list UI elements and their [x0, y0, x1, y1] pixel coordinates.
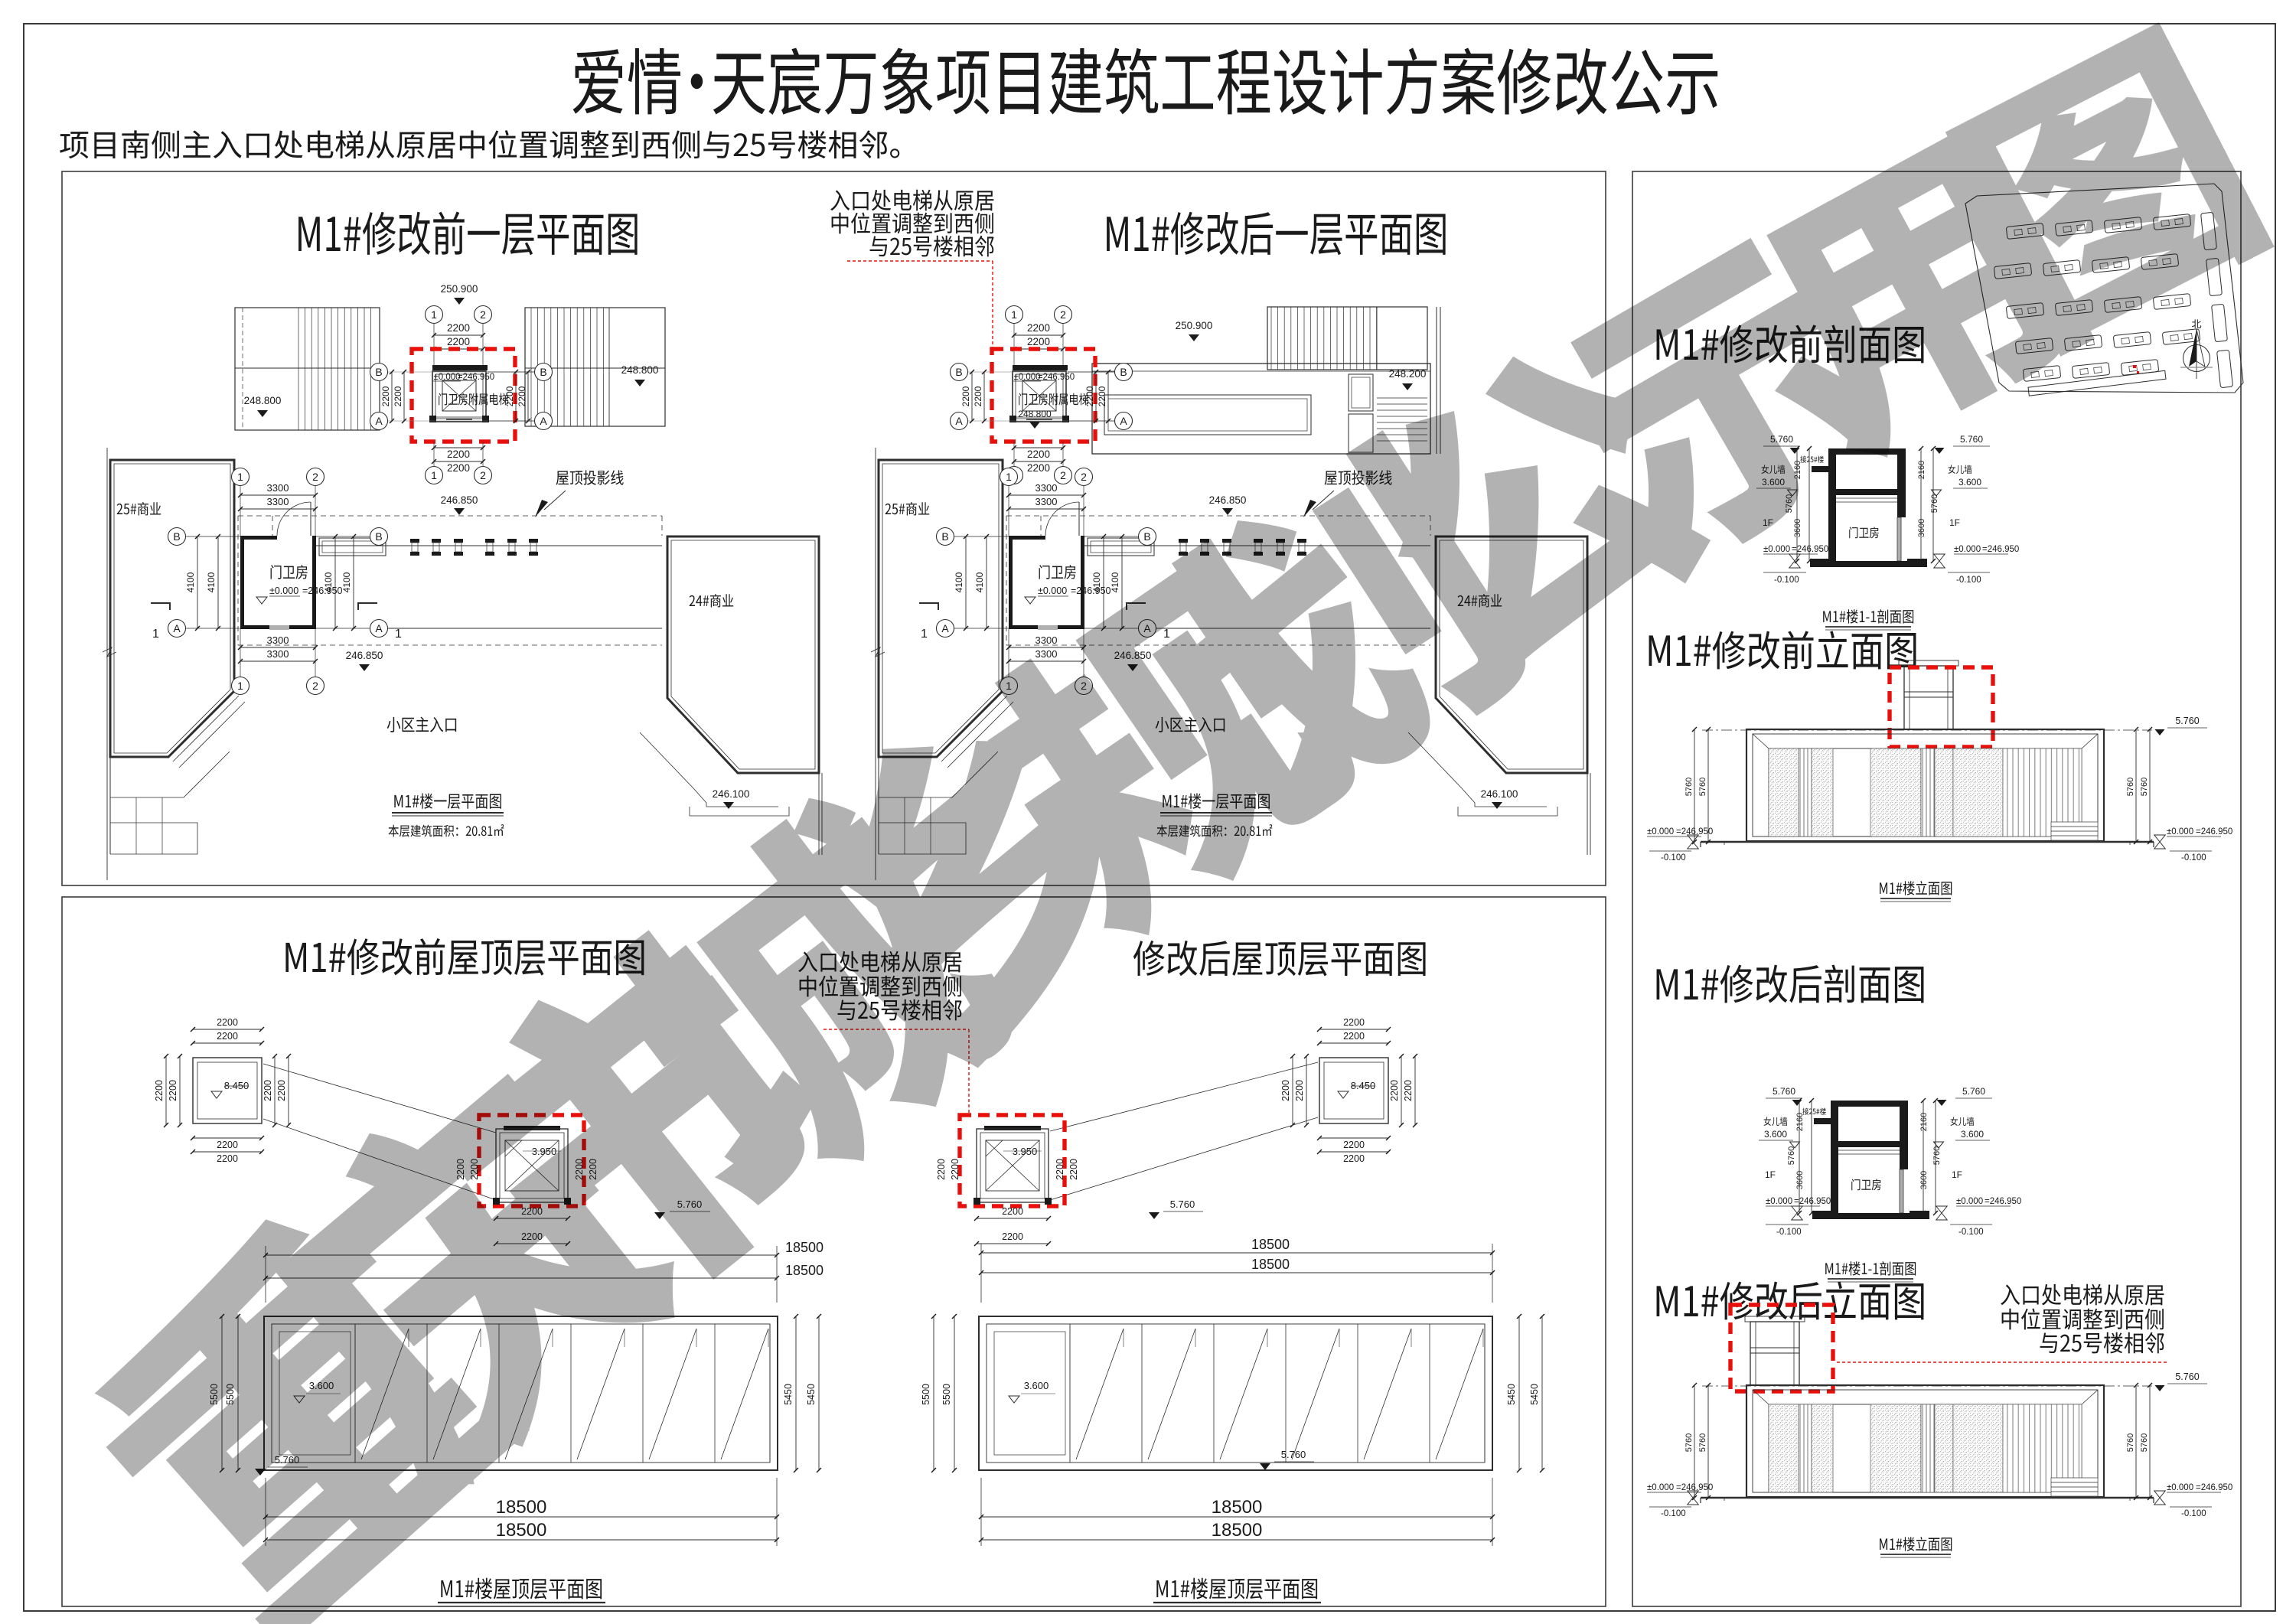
svg-text:±0.000: ±0.000 [1763, 545, 1790, 554]
svg-text:4100: 4100 [185, 572, 196, 592]
svg-text:8.450: 8.450 [1351, 1080, 1376, 1091]
svg-text:18500: 18500 [1251, 1257, 1290, 1272]
svg-text:3.950: 3.950 [1013, 1146, 1038, 1157]
svg-text:3300: 3300 [1035, 482, 1058, 494]
svg-text:2160: 2160 [1795, 1113, 1805, 1131]
svg-text:2200: 2200 [1343, 1153, 1365, 1164]
svg-text:5760: 5760 [1698, 778, 1707, 796]
svg-text:±0.000: ±0.000 [1647, 827, 1674, 836]
svg-text:-0.100: -0.100 [1776, 1228, 1802, 1237]
svg-text:2200: 2200 [1343, 1140, 1365, 1150]
svg-text:A: A [375, 415, 383, 427]
svg-text:250.900: 250.900 [441, 283, 478, 295]
svg-text:246.850: 246.850 [1209, 494, 1247, 506]
svg-text:5500: 5500 [941, 1384, 952, 1405]
svg-text:2200: 2200 [154, 1080, 165, 1101]
svg-text:A: A [955, 415, 963, 427]
svg-text:2160: 2160 [1919, 1113, 1929, 1131]
svg-text:4100: 4100 [1091, 572, 1102, 592]
svg-text:A: A [375, 622, 383, 634]
svg-text:2200: 2200 [263, 1080, 273, 1101]
svg-text:=246.950: =246.950 [458, 373, 494, 382]
svg-text:2200: 2200 [1343, 1017, 1365, 1028]
svg-text:1: 1 [431, 308, 437, 321]
svg-text:2200: 2200 [936, 1159, 947, 1180]
svg-text:=246.950: =246.950 [1985, 1197, 2021, 1206]
svg-text:5450: 5450 [806, 1384, 817, 1405]
svg-text:2200: 2200 [276, 1080, 287, 1101]
svg-text:5760: 5760 [1684, 1433, 1694, 1452]
svg-text:8.450: 8.450 [224, 1080, 249, 1091]
svg-text:1: 1 [1006, 471, 1012, 483]
svg-text:2: 2 [1060, 469, 1066, 481]
svg-text:-0.100: -0.100 [1958, 1228, 1984, 1237]
svg-text:B: B [540, 366, 546, 378]
svg-text:1: 1 [237, 680, 243, 692]
svg-text:2200: 2200 [950, 1159, 960, 1180]
svg-text:-0.100: -0.100 [1661, 853, 1686, 863]
svg-text:5760: 5760 [1787, 1146, 1796, 1165]
svg-text:5.760: 5.760 [1960, 434, 1983, 445]
svg-text:±0.000: ±0.000 [1038, 585, 1067, 596]
svg-text:3600: 3600 [1919, 1171, 1929, 1189]
svg-text:5500: 5500 [921, 1384, 931, 1405]
svg-text:246.850: 246.850 [346, 650, 383, 661]
svg-text:2200: 2200 [1002, 1231, 1023, 1242]
svg-text:3300: 3300 [267, 496, 289, 507]
svg-text:3600: 3600 [1795, 1171, 1805, 1189]
svg-text:2200: 2200 [1027, 448, 1050, 460]
svg-text:1F: 1F [1949, 517, 1960, 528]
svg-text:2200: 2200 [1280, 1080, 1291, 1101]
svg-text:5.760: 5.760 [1773, 1086, 1795, 1097]
svg-text:A: A [173, 622, 181, 634]
svg-text:3.600: 3.600 [1764, 1129, 1787, 1140]
svg-text:1: 1 [152, 628, 159, 641]
svg-text:1F: 1F [1952, 1169, 1962, 1180]
svg-text:2200: 2200 [217, 1153, 238, 1164]
svg-text:=246.950: =246.950 [1982, 545, 2019, 554]
svg-text:246.100: 246.100 [1481, 788, 1518, 800]
svg-text:5450: 5450 [783, 1384, 794, 1405]
svg-text:B: B [941, 530, 948, 543]
svg-text:2: 2 [312, 471, 318, 483]
svg-text:A: A [540, 415, 547, 427]
svg-text:5760: 5760 [2140, 1433, 2149, 1452]
svg-text:3600: 3600 [1917, 519, 1926, 537]
svg-text:5.760: 5.760 [2175, 716, 2199, 726]
svg-text:2200: 2200 [447, 322, 470, 334]
svg-text:4100: 4100 [206, 572, 217, 592]
svg-text:B: B [955, 366, 962, 378]
svg-text:2: 2 [480, 308, 486, 321]
svg-text:3300: 3300 [1035, 496, 1058, 507]
svg-text:-0.100: -0.100 [2181, 1509, 2206, 1518]
svg-text:3300: 3300 [267, 648, 289, 660]
svg-text:3.600: 3.600 [1958, 477, 1981, 488]
svg-text:5.760: 5.760 [1962, 1086, 1985, 1097]
svg-text:-0.100: -0.100 [1661, 1509, 1686, 1518]
svg-text:±0.000: ±0.000 [269, 585, 298, 596]
svg-text:4100: 4100 [974, 572, 985, 592]
svg-text:2200: 2200 [447, 448, 470, 460]
svg-text:5760: 5760 [2140, 778, 2149, 796]
svg-text:5450: 5450 [1529, 1384, 1540, 1405]
svg-text:18500: 18500 [1251, 1237, 1290, 1252]
svg-text:2: 2 [1081, 471, 1087, 483]
svg-text:=246.950: =246.950 [2196, 827, 2232, 836]
svg-text:2200: 2200 [960, 386, 971, 406]
svg-text:4100: 4100 [954, 572, 964, 592]
svg-text:=246.950: =246.950 [1038, 373, 1075, 382]
svg-text:18500: 18500 [1212, 1520, 1263, 1541]
svg-text:2200: 2200 [1403, 1080, 1414, 1101]
svg-text:246.100: 246.100 [713, 788, 750, 800]
svg-text:-0.100: -0.100 [1956, 576, 1981, 585]
svg-text:±0.000: ±0.000 [1766, 1197, 1792, 1206]
svg-text:18500: 18500 [496, 1497, 547, 1518]
svg-text:2200: 2200 [973, 386, 983, 406]
svg-text:B: B [1143, 530, 1150, 543]
svg-text:3.600: 3.600 [1961, 1129, 1984, 1140]
svg-text:250.900: 250.900 [1176, 320, 1213, 331]
svg-text:1: 1 [1163, 628, 1170, 641]
svg-text:2200: 2200 [1027, 462, 1050, 474]
svg-text:4100: 4100 [323, 572, 334, 592]
svg-text:5760: 5760 [1930, 494, 1939, 513]
svg-text:5450: 5450 [1506, 1384, 1517, 1405]
svg-text:2200: 2200 [1055, 1159, 1065, 1180]
svg-text:3300: 3300 [1035, 648, 1058, 660]
svg-text:1: 1 [237, 471, 243, 483]
svg-text:5.760: 5.760 [1281, 1449, 1306, 1460]
svg-text:2200: 2200 [217, 1140, 238, 1150]
svg-text:2200: 2200 [504, 386, 515, 406]
svg-text:3.950: 3.950 [532, 1146, 557, 1157]
svg-text:2: 2 [1060, 308, 1066, 321]
svg-text:3300: 3300 [1035, 634, 1058, 646]
svg-text:1: 1 [431, 469, 437, 481]
svg-text:2: 2 [312, 680, 318, 692]
svg-text:2200: 2200 [393, 386, 403, 406]
svg-text:2200: 2200 [380, 386, 391, 406]
svg-text:1F: 1F [1765, 1169, 1776, 1180]
svg-text:2160: 2160 [1917, 461, 1926, 479]
svg-text:1: 1 [1011, 308, 1017, 321]
svg-text:-0.100: -0.100 [2181, 853, 2206, 863]
svg-text:±0.000: ±0.000 [2167, 1483, 2193, 1492]
svg-text:±0.000: ±0.000 [433, 373, 460, 382]
svg-text:2200: 2200 [168, 1080, 178, 1101]
svg-text:±0.000: ±0.000 [1013, 373, 1040, 382]
svg-text:A: A [941, 622, 949, 634]
svg-text:2200: 2200 [447, 336, 470, 347]
svg-text:1: 1 [395, 628, 402, 641]
svg-text:2200: 2200 [1097, 386, 1107, 406]
svg-text:5760: 5760 [2126, 1433, 2135, 1452]
svg-text:2200: 2200 [1027, 322, 1050, 334]
svg-text:B: B [1120, 366, 1127, 378]
svg-text:5760: 5760 [1698, 1433, 1707, 1452]
svg-text:246.850: 246.850 [441, 494, 478, 506]
svg-text:3600: 3600 [1793, 519, 1802, 537]
svg-text:1: 1 [921, 628, 928, 641]
svg-text:5760: 5760 [2126, 778, 2135, 796]
svg-text:=246.950: =246.950 [2196, 1483, 2232, 1492]
svg-text:2200: 2200 [1343, 1031, 1365, 1042]
svg-text:2200: 2200 [447, 462, 470, 474]
svg-text:A: A [1120, 415, 1127, 427]
svg-text:5.760: 5.760 [1170, 1198, 1195, 1210]
svg-text:18500: 18500 [785, 1240, 823, 1255]
svg-text:2200: 2200 [1068, 1159, 1079, 1180]
svg-text:B: B [375, 530, 382, 543]
svg-text:4100: 4100 [1110, 572, 1120, 592]
svg-text:18500: 18500 [496, 1520, 547, 1541]
svg-text:±0.000: ±0.000 [1954, 545, 1981, 554]
svg-text:B: B [375, 366, 382, 378]
svg-text:248.800: 248.800 [621, 364, 659, 376]
svg-text:2200: 2200 [1389, 1080, 1400, 1101]
svg-text:18500: 18500 [1212, 1497, 1263, 1518]
svg-text:±0.000: ±0.000 [1647, 1483, 1674, 1492]
svg-text:B: B [173, 530, 180, 543]
svg-text:18500: 18500 [785, 1263, 823, 1278]
svg-text:248.800: 248.800 [244, 395, 282, 406]
svg-text:2200: 2200 [1084, 386, 1095, 406]
svg-text:2200: 2200 [1002, 1206, 1023, 1217]
svg-text:248.800: 248.800 [1018, 409, 1052, 419]
svg-text:2200: 2200 [217, 1031, 238, 1042]
svg-text:±0.000: ±0.000 [1956, 1197, 1983, 1206]
svg-text:5.760: 5.760 [2175, 1371, 2199, 1382]
svg-text:4100: 4100 [341, 572, 352, 592]
svg-text:3.600: 3.600 [1024, 1380, 1049, 1391]
svg-text:2200: 2200 [1294, 1080, 1305, 1101]
svg-text:2: 2 [480, 469, 486, 481]
svg-text:2200: 2200 [517, 386, 527, 406]
svg-text:±0.000: ±0.000 [2167, 827, 2193, 836]
svg-text:2200: 2200 [1027, 336, 1050, 347]
svg-text:-0.100: -0.100 [1774, 576, 1799, 585]
svg-text:2200: 2200 [217, 1017, 238, 1028]
svg-text:5760: 5760 [1684, 778, 1694, 796]
svg-text:5760: 5760 [1932, 1146, 1942, 1165]
svg-text:3300: 3300 [267, 482, 289, 494]
svg-text:3300: 3300 [267, 634, 289, 646]
